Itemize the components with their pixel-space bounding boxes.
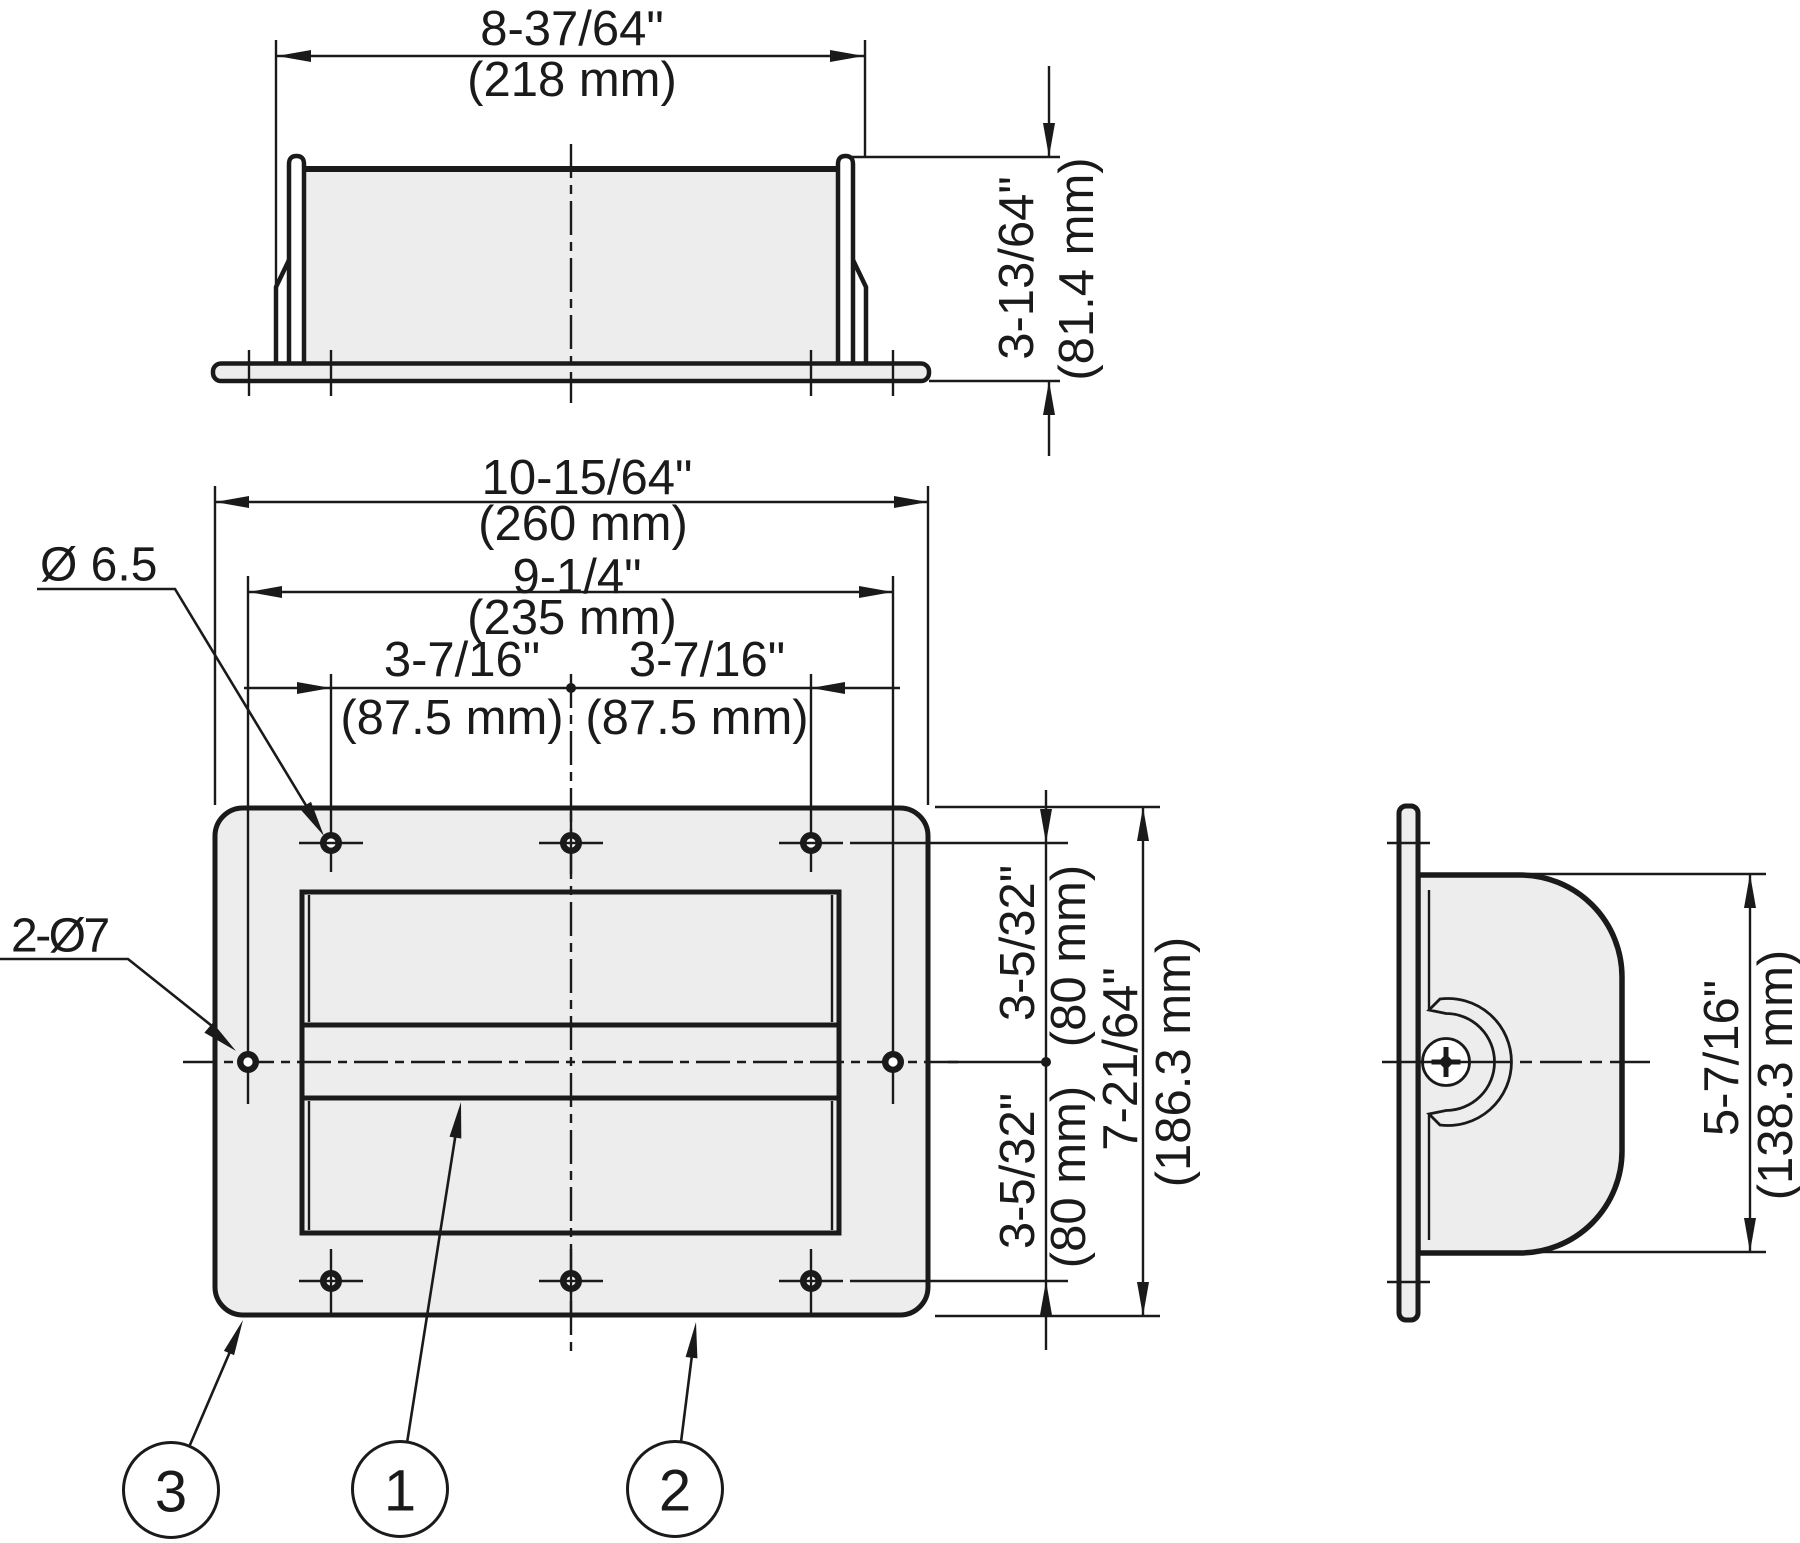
svg-text:2: 2 [659,1459,691,1524]
svg-text:3: 3 [155,1460,187,1525]
svg-text:3-5/32": 3-5/32" [991,865,1045,1021]
svg-text:(80 mm): (80 mm) [1042,865,1096,1047]
svg-text:2-Ø7: 2-Ø7 [11,910,109,963]
svg-text:3-5/32": 3-5/32" [991,1093,1045,1249]
svg-text:1: 1 [384,1459,416,1524]
svg-text:(87.5 mm): (87.5 mm) [585,691,808,745]
svg-text:3-13/64": 3-13/64" [990,176,1044,360]
svg-text:(138.3 mm): (138.3 mm) [1749,950,1800,1201]
svg-text:(186.3 mm): (186.3 mm) [1147,937,1201,1188]
svg-text:Ø 6.5: Ø 6.5 [40,539,157,592]
svg-text:5-7/16": 5-7/16" [1695,980,1749,1136]
svg-text:(87.5 mm): (87.5 mm) [340,691,563,745]
svg-text:3-7/16": 3-7/16" [629,633,785,687]
svg-text:(81.4 mm): (81.4 mm) [1050,157,1104,380]
svg-text:(80 mm): (80 mm) [1042,1086,1096,1268]
svg-text:(218 mm): (218 mm) [467,53,677,107]
svg-text:3-7/16": 3-7/16" [384,633,540,687]
svg-text:7-21/64": 7-21/64" [1094,967,1148,1151]
svg-text:(260 mm): (260 mm) [478,497,688,551]
svg-text:8-37/64": 8-37/64" [480,2,664,56]
